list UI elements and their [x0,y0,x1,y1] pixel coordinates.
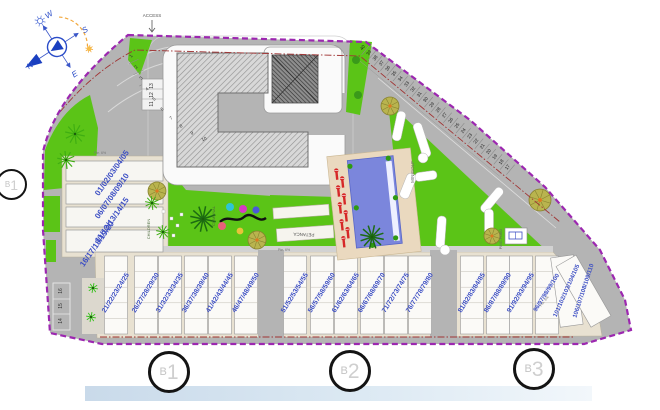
compass-w: W [43,8,55,20]
trunk [255,238,258,241]
plan-graphics: N S W E ACCESS COMUNAL CHILDREN MINIGOLF… [0,0,660,410]
trunk [65,159,67,161]
petanca-label: PETANCA [293,232,314,238]
children-label: CHILDREN [146,219,151,240]
marker-number: 1 [167,362,179,383]
comunal-label: COMUNAL [211,205,216,226]
walkway-band [95,246,553,252]
shrub-icon [352,56,360,64]
parking-space-number: 15 [58,303,64,309]
marker-number: 2 [348,361,360,382]
parking-space-number: 11 [149,101,155,106]
marker-number: 1 [10,178,18,192]
dark-building-roof [272,55,318,103]
section-marker-b1: B1 [148,351,190,393]
marker-number: 3 [532,359,544,380]
olive-tree-icon [381,97,399,115]
trunk [371,236,373,238]
parking-space-number: 12 [149,92,155,98]
olive-tree-icon [248,231,266,249]
parking-space-number: 16 [58,288,64,294]
site-plan-canvas: N S W E ACCESS COMUNAL CHILDREN MINIGOLF… [0,0,660,410]
pingpong-label: PING-PONG [499,229,503,250]
trunk [162,231,164,233]
green-left-strip2 [46,240,56,262]
slope-label-1: Pte. 6% [94,151,106,155]
shrub-icon [354,91,362,99]
section-marker-b3: B3 [513,348,555,390]
star-icon [37,17,44,24]
trunk [491,235,494,238]
compass-s: S [80,24,90,35]
trunk [74,133,76,135]
section-marker-b2: B2 [329,350,371,392]
access-label: ACCESS [143,13,162,18]
marker-prefix: B [524,364,531,375]
minigolf-course [440,245,450,255]
minigolf-course [418,153,428,163]
olive-tree-icon [529,189,551,211]
minigolf-course [435,216,446,249]
olive-tree-icon [148,182,166,200]
trunk [388,104,391,107]
marker-prefix: B [159,367,166,378]
trunk [155,189,158,192]
trunk [151,202,153,204]
trunk [90,316,92,318]
trunk [202,218,204,220]
access-arrow [149,20,155,32]
green-petanca [270,195,337,252]
green-left-strip1 [44,196,60,232]
pingpong-table-box [505,228,527,244]
olive-tree-icon [484,228,500,244]
marker-prefix: B [340,366,347,377]
sun-icon [86,45,93,52]
slope-label-2: Pte. 6% [278,248,290,252]
parking-space-number: 14 [58,318,64,324]
minigolf-label: MINIGOLF [410,161,415,183]
parking-space-number: 13 [149,83,155,89]
compass-e: E [70,69,80,80]
trunk [538,198,542,202]
main-building [163,45,346,185]
trunk [92,287,94,289]
